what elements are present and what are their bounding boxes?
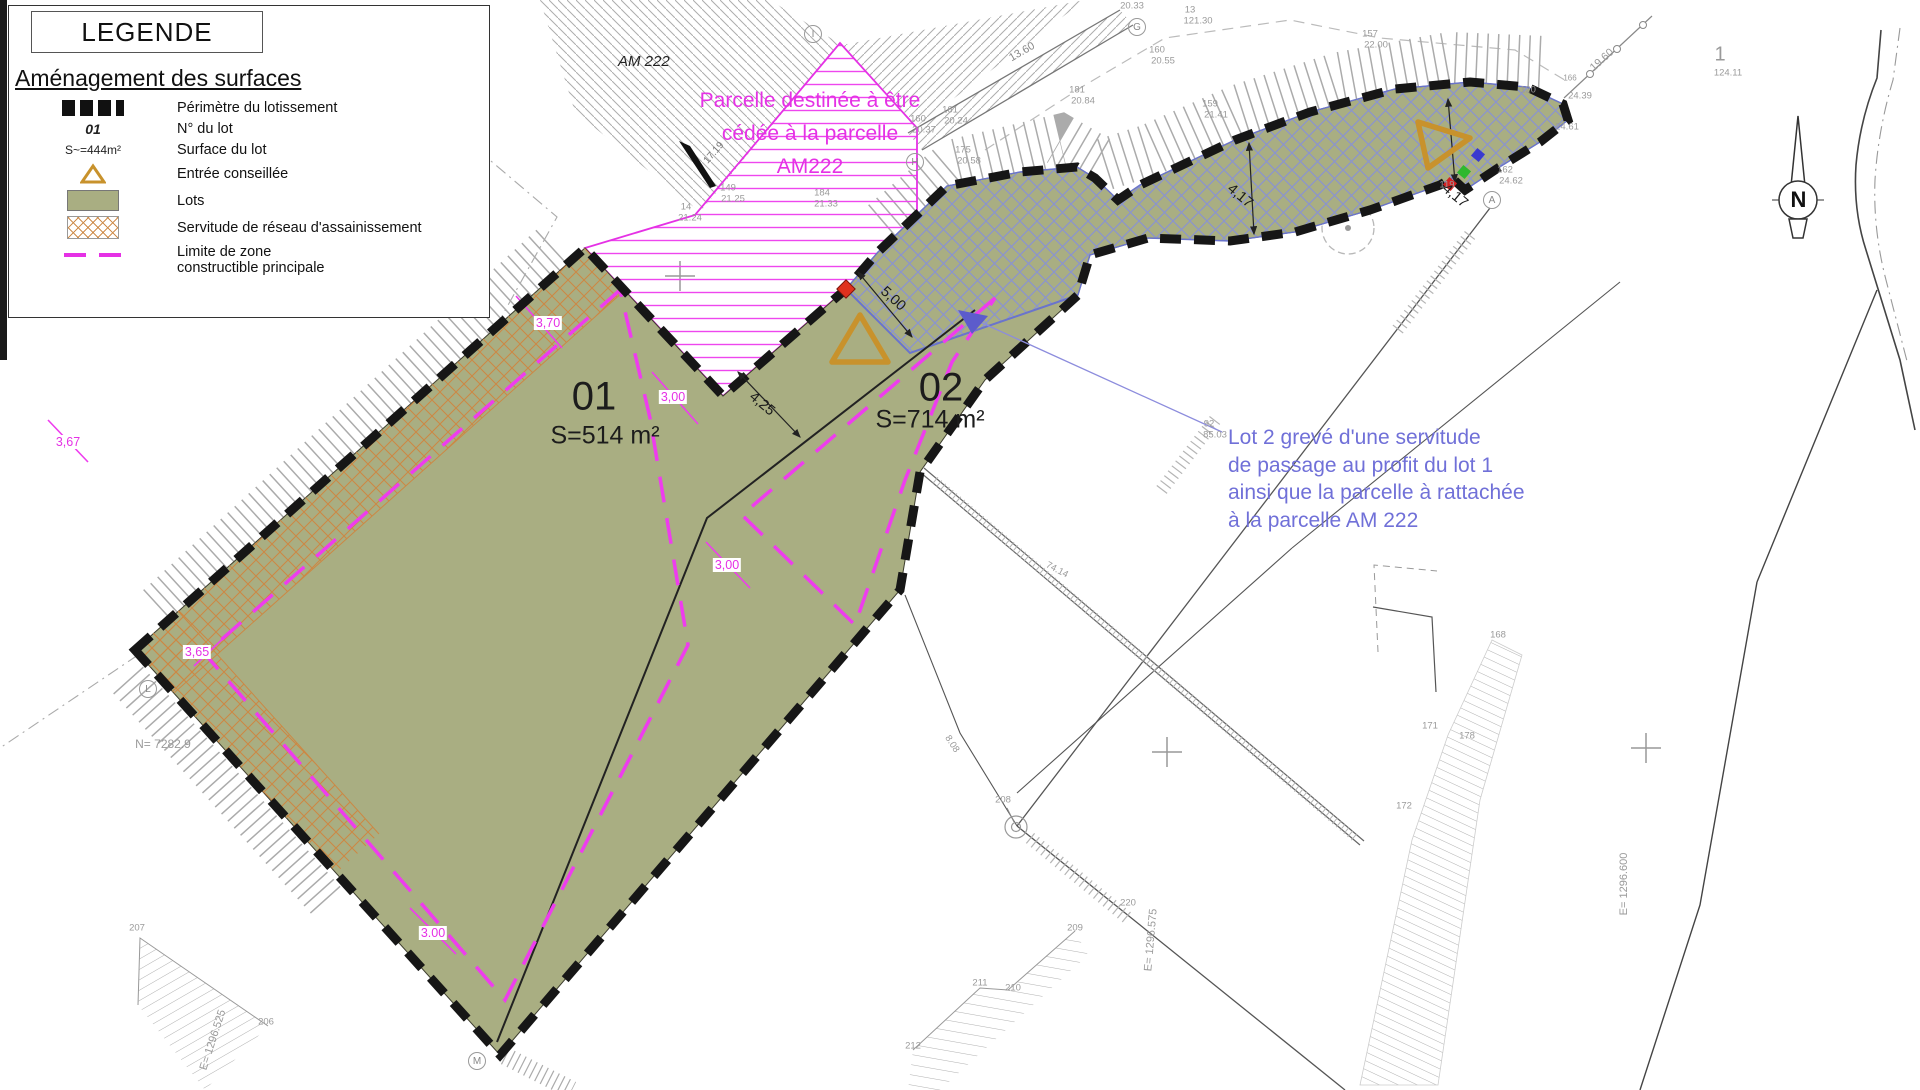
survey-label: 157 bbox=[1362, 29, 1378, 40]
survey-label: 161 bbox=[942, 105, 958, 116]
survey-label: 166 bbox=[1563, 74, 1576, 83]
survey-label: 21.25 bbox=[721, 194, 745, 205]
offset-dimension-label: 3,70 bbox=[534, 316, 562, 330]
dimension-label: 4,17 bbox=[1224, 181, 1256, 211]
survey-label: 181 bbox=[1069, 85, 1085, 96]
survey-label: 121.30 bbox=[1183, 16, 1212, 27]
dimension-label: 5,00 bbox=[877, 284, 909, 315]
survey-label: 22.00 bbox=[1364, 40, 1388, 51]
survey-label: N= 7282.9 bbox=[135, 737, 191, 751]
survey-label: 20.58 bbox=[957, 156, 981, 167]
survey-label: 149 bbox=[720, 183, 736, 194]
dimension-label: 4,17 bbox=[1439, 181, 1471, 211]
survey-label: 178 bbox=[1459, 731, 1475, 742]
survey-label: 14 bbox=[681, 202, 692, 213]
survey-label: 8.08 bbox=[942, 733, 961, 755]
survey-label: 24.62 bbox=[1499, 176, 1523, 187]
survey-point-G: G bbox=[1128, 18, 1146, 36]
survey-label: 21.41 bbox=[1204, 110, 1228, 121]
survey-label: 1 bbox=[1714, 44, 1725, 67]
survey-label: 172 bbox=[1396, 801, 1412, 812]
survey-label: 211 bbox=[972, 978, 987, 989]
survey-label: 124.11 bbox=[1714, 68, 1742, 79]
survey-label: 20.55 bbox=[1151, 56, 1175, 67]
survey-label: 24.61 bbox=[1555, 122, 1579, 133]
survey-label: E= 1296.575 bbox=[1142, 908, 1159, 972]
survey-label: 160 bbox=[910, 114, 926, 125]
survey-point-H: H bbox=[906, 153, 924, 171]
survey-label: 175 bbox=[955, 145, 971, 156]
dimension-label: 4,25 bbox=[746, 389, 778, 419]
survey-label: 162 bbox=[1497, 165, 1513, 176]
survey-label: 171 bbox=[1422, 721, 1438, 732]
survey-label: 92 bbox=[1204, 419, 1215, 430]
offset-dimension-label: 3.00 bbox=[419, 926, 447, 940]
offset-dimension-label: 3,67 bbox=[54, 435, 82, 449]
survey-point-M: M bbox=[468, 1052, 486, 1070]
survey-label: 184 bbox=[814, 188, 830, 199]
survey-label: 209 bbox=[1067, 923, 1083, 934]
survey-label: 21.33 bbox=[814, 199, 838, 210]
survey-label: 220 bbox=[1120, 898, 1136, 909]
survey-label: 85.03 bbox=[1203, 430, 1227, 441]
offset-dimension-label: 3,00 bbox=[659, 390, 687, 404]
survey-label: 20.24 bbox=[944, 116, 968, 127]
survey-label: 159 bbox=[1202, 99, 1218, 110]
survey-label: 208 bbox=[995, 795, 1011, 806]
survey-label: 19.60 bbox=[1588, 46, 1616, 73]
survey-label: E= 1296.600 bbox=[1618, 853, 1630, 916]
survey-label: 20.37 bbox=[912, 125, 936, 136]
survey-point-L: L bbox=[139, 680, 157, 698]
survey-label: 20.84 bbox=[1071, 96, 1095, 107]
survey-label: 13.60 bbox=[1007, 40, 1037, 64]
survey-label: 168 bbox=[1490, 630, 1506, 641]
survey-label: 207 bbox=[129, 923, 145, 934]
survey-label: E= 1296.525 bbox=[198, 1008, 229, 1071]
survey-label: 206 bbox=[258, 1017, 274, 1028]
survey-label: 74.14 bbox=[1044, 560, 1070, 581]
survey-label: 120 bbox=[1520, 85, 1536, 96]
survey-label: 24.39 bbox=[1568, 91, 1592, 102]
survey-label: 212 bbox=[905, 1041, 921, 1052]
survey-label: 17.19 bbox=[702, 140, 727, 166]
survey-label: 160 bbox=[1149, 45, 1165, 56]
survey-label: 21.24 bbox=[678, 213, 702, 224]
survey-label: 20.33 bbox=[1120, 1, 1144, 12]
survey-label: 210 bbox=[1005, 983, 1021, 994]
survey-point-I: I bbox=[804, 25, 822, 43]
offset-dimension-label: 3,65 bbox=[183, 645, 211, 659]
survey-point-A: A bbox=[1483, 191, 1501, 209]
cadastral-plan: LEGENDE Aménagement des surfaces Périmèt… bbox=[0, 0, 1920, 1090]
offset-dimension-label: 3,00 bbox=[713, 558, 741, 572]
survey-label: 13 bbox=[1185, 5, 1196, 16]
annotation-layer: 20.3313121.3016020.5518120.8417520.58160… bbox=[0, 0, 1920, 1090]
